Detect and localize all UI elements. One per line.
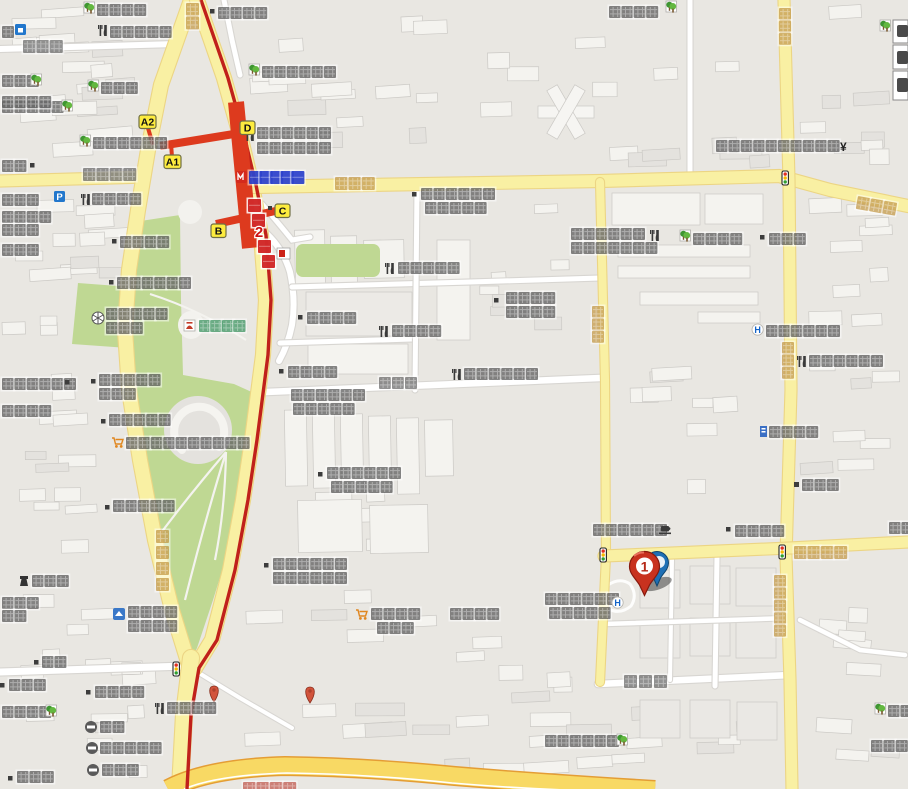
svg-text:P: P [56,192,63,203]
svg-text:A2: A2 [141,117,155,129]
svg-text:C: C [279,206,287,218]
svg-text:¥: ¥ [840,140,847,154]
svg-text:H: H [614,598,621,608]
svg-text:D: D [244,123,252,135]
svg-text:A1: A1 [166,157,180,169]
svg-text:1: 1 [641,559,649,575]
svg-text:2: 2 [255,224,263,241]
svg-text:B: B [215,226,223,238]
svg-text:H: H [754,325,761,335]
